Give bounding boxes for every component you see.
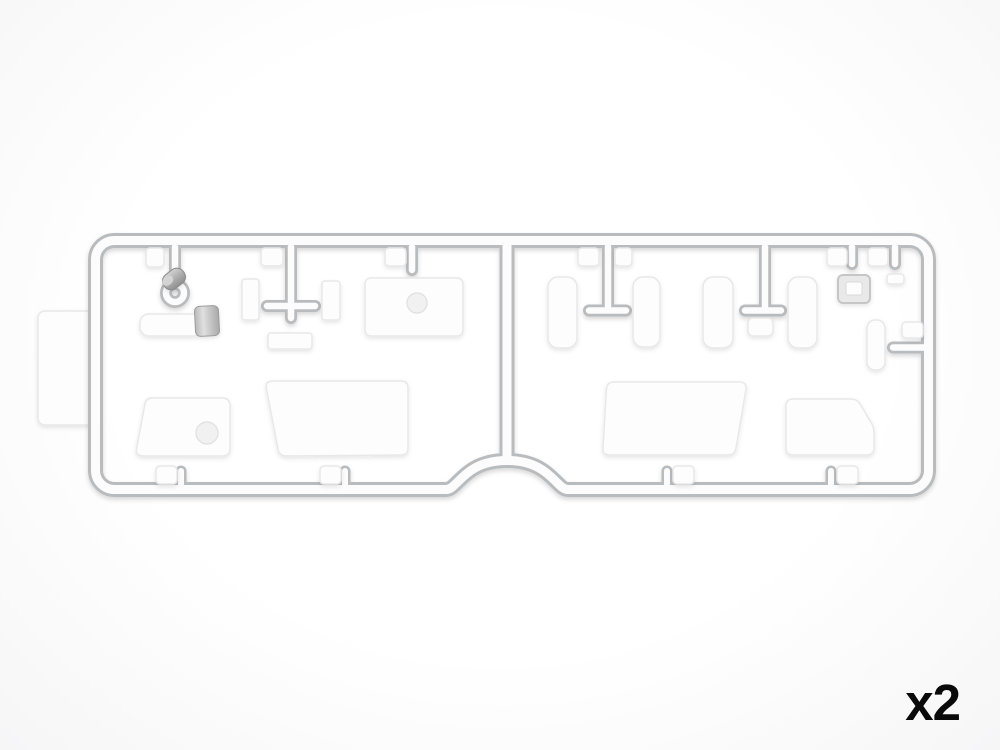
- molding-tab: [837, 466, 858, 484]
- part-barrel-sleeve: [140, 305, 220, 336]
- molding-tab: [868, 248, 888, 266]
- part-pad-pill-3: [703, 277, 733, 348]
- molding-tab: [673, 466, 694, 484]
- part-hatch-frame: [838, 275, 870, 303]
- part-large-panel-right: [603, 382, 746, 455]
- molding-tab: [385, 248, 406, 266]
- part-angled-flap-left: [136, 398, 230, 456]
- part-barrel-collar: [194, 305, 220, 336]
- panel-hole: [407, 293, 427, 313]
- hatch-frame-opening: [846, 282, 862, 295]
- molding-tab: [156, 466, 177, 484]
- molding-tab: [578, 248, 599, 266]
- part-small-chip: [887, 274, 904, 284]
- molding-tab: [320, 466, 341, 484]
- sprue-product-render: x2: [0, 0, 1000, 750]
- part-panel-with-hole: [365, 278, 463, 336]
- part-pad-pill-1: [548, 277, 577, 348]
- molding-tab: [902, 322, 923, 338]
- molding-tab: [261, 248, 283, 266]
- part-small-pad-right: [867, 320, 885, 370]
- quantity-label: x2: [905, 677, 960, 728]
- molding-tab: [146, 248, 164, 267]
- part-pad-pill-2: [633, 277, 660, 347]
- sprue-svg: [0, 0, 1000, 750]
- flap-hole: [196, 422, 218, 444]
- part-large-panel-left: [266, 381, 408, 456]
- molding-tab: [827, 248, 847, 266]
- part-angled-flap-right: [786, 399, 874, 455]
- molding-tab: [615, 248, 632, 266]
- molding-tab: [748, 318, 773, 336]
- part-small-plate-horizontal: [268, 333, 312, 349]
- part-small-plate-vertical-left: [242, 279, 259, 320]
- part-pad-pill-4: [788, 277, 817, 348]
- part-small-plate-vertical-right: [322, 281, 340, 320]
- page: { "scene": { "quantity_label": "x2" }, "…: [0, 0, 1000, 750]
- sprue-parts: [136, 248, 923, 484]
